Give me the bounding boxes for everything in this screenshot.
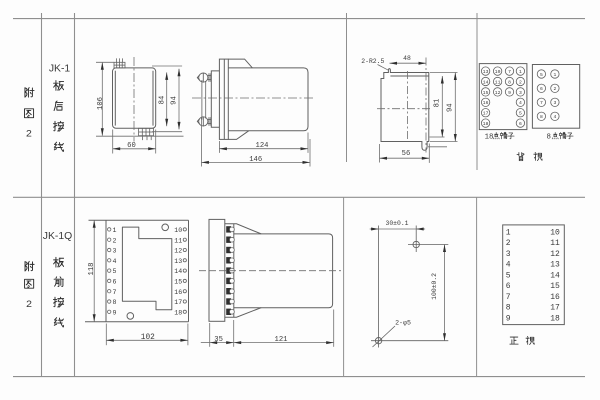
svg-text:12: 12 bbox=[495, 90, 501, 96]
svg-text:106: 106 bbox=[97, 97, 105, 110]
svg-text:1: 1 bbox=[553, 72, 556, 78]
svg-text:4: 4 bbox=[506, 261, 511, 270]
svg-text:12: 12 bbox=[550, 250, 560, 259]
svg-text:16: 16 bbox=[550, 293, 560, 302]
svg-text:2-φ5: 2-φ5 bbox=[395, 320, 411, 327]
svg-text:4: 4 bbox=[113, 258, 117, 265]
svg-text:6: 6 bbox=[519, 121, 522, 127]
svg-text:14: 14 bbox=[550, 271, 560, 280]
svg-text:18: 18 bbox=[483, 121, 489, 127]
svg-text:13: 13 bbox=[483, 69, 489, 75]
svg-text:1: 1 bbox=[113, 227, 117, 234]
svg-text:2: 2 bbox=[113, 237, 117, 244]
svg-text:13: 13 bbox=[174, 258, 182, 265]
svg-text:16: 16 bbox=[483, 100, 489, 106]
svg-text:5: 5 bbox=[113, 268, 117, 275]
svg-text:10: 10 bbox=[174, 227, 182, 234]
svg-text:124: 124 bbox=[256, 142, 269, 150]
svg-text:7: 7 bbox=[506, 293, 511, 302]
svg-text:9: 9 bbox=[508, 90, 511, 96]
svg-text:8: 8 bbox=[540, 114, 543, 120]
svg-text:9: 9 bbox=[506, 315, 511, 324]
svg-text:JK-1: JK-1 bbox=[49, 63, 71, 74]
svg-text:8: 8 bbox=[113, 299, 117, 306]
svg-text:15: 15 bbox=[174, 279, 182, 286]
svg-text:5: 5 bbox=[540, 72, 543, 78]
svg-text:3: 3 bbox=[506, 250, 511, 259]
svg-text:94: 94 bbox=[171, 96, 179, 105]
svg-text:15: 15 bbox=[483, 90, 489, 96]
svg-text:8: 8 bbox=[506, 304, 511, 313]
svg-text:121: 121 bbox=[275, 336, 288, 344]
svg-text:94: 94 bbox=[447, 103, 455, 112]
svg-text:2: 2 bbox=[519, 79, 522, 85]
svg-text:1: 1 bbox=[519, 69, 522, 75]
svg-text:100±0.2: 100±0.2 bbox=[431, 273, 438, 300]
svg-text:6: 6 bbox=[540, 86, 543, 92]
svg-text:3: 3 bbox=[519, 90, 522, 96]
svg-text:JK-1Q: JK-1Q bbox=[43, 231, 72, 242]
svg-text:81: 81 bbox=[434, 99, 442, 108]
svg-text:10: 10 bbox=[550, 228, 560, 237]
svg-text:2: 2 bbox=[506, 239, 511, 248]
svg-text:6: 6 bbox=[113, 279, 117, 286]
svg-text:15: 15 bbox=[550, 282, 560, 291]
svg-text:5: 5 bbox=[506, 271, 511, 280]
svg-text:7: 7 bbox=[508, 69, 511, 75]
svg-text:8: 8 bbox=[508, 79, 511, 85]
svg-text:14: 14 bbox=[483, 79, 489, 85]
svg-text:3: 3 bbox=[553, 100, 556, 106]
svg-text:18: 18 bbox=[550, 315, 560, 324]
svg-text:11: 11 bbox=[550, 239, 560, 248]
svg-text:17: 17 bbox=[483, 111, 489, 117]
svg-text:4: 4 bbox=[553, 114, 556, 120]
svg-text:2-R2.5: 2-R2.5 bbox=[361, 58, 384, 65]
svg-text:18: 18 bbox=[174, 309, 182, 316]
svg-text:146: 146 bbox=[249, 156, 262, 164]
svg-text:10: 10 bbox=[495, 69, 501, 75]
svg-text:4: 4 bbox=[519, 100, 522, 106]
svg-text:7: 7 bbox=[113, 289, 117, 296]
svg-text:6: 6 bbox=[506, 282, 511, 291]
svg-text:84: 84 bbox=[159, 96, 167, 105]
svg-text:17: 17 bbox=[174, 299, 182, 306]
svg-text:7: 7 bbox=[540, 100, 543, 106]
svg-text:102: 102 bbox=[141, 334, 155, 342]
svg-text:18: 18 bbox=[485, 134, 494, 142]
svg-text:3: 3 bbox=[113, 248, 117, 255]
svg-text:118: 118 bbox=[88, 263, 96, 276]
svg-text:2: 2 bbox=[26, 129, 32, 141]
svg-text:60: 60 bbox=[127, 142, 136, 150]
svg-text:2: 2 bbox=[553, 86, 556, 92]
svg-text:9: 9 bbox=[113, 309, 117, 316]
svg-text:35: 35 bbox=[214, 336, 223, 344]
svg-text:13: 13 bbox=[550, 261, 560, 270]
svg-text:48: 48 bbox=[403, 55, 411, 62]
svg-text:1: 1 bbox=[506, 228, 511, 237]
svg-text:16: 16 bbox=[174, 289, 182, 296]
svg-text:11: 11 bbox=[174, 237, 182, 244]
svg-text:11: 11 bbox=[495, 79, 501, 85]
svg-text:17: 17 bbox=[550, 304, 560, 313]
svg-text:5: 5 bbox=[519, 111, 522, 117]
svg-text:14: 14 bbox=[174, 268, 182, 275]
svg-text:2: 2 bbox=[26, 299, 32, 311]
svg-text:56: 56 bbox=[402, 150, 411, 158]
svg-text:12: 12 bbox=[174, 248, 182, 255]
svg-text:8: 8 bbox=[546, 134, 550, 142]
svg-text:30±0.1: 30±0.1 bbox=[385, 220, 408, 227]
